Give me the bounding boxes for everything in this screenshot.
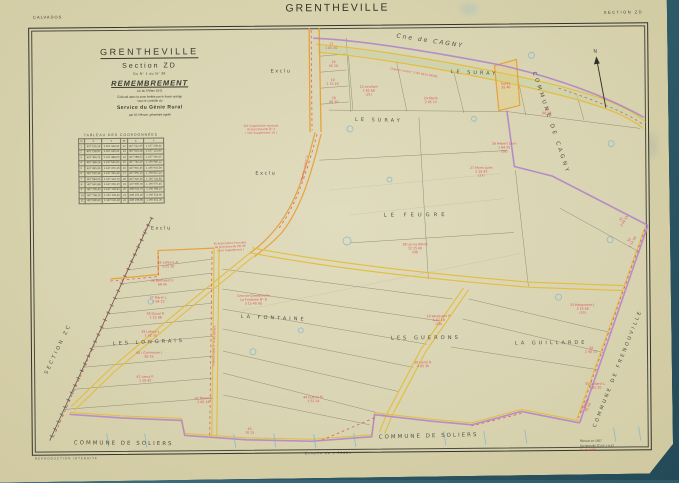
section-label: SECTION ZD [604, 9, 643, 14]
coordinates-table-cell: 407 830,60 [86, 198, 103, 204]
coordinates-table-cell: 1 166 452,30 [145, 198, 164, 204]
title-law: Loi du 9 Mars 1941 [63, 88, 237, 94]
title-parcel-range: Du N° 1 au N° 38 [63, 71, 237, 77]
title-service: Service du Génie Rural [63, 103, 237, 111]
scale-note: Échelle de 1:2000e [305, 451, 352, 455]
coordinates-table-row: 11407 830,601 167 032,1822408 168,851 16… [79, 198, 164, 204]
title-commune: GRENTHEVILLE [100, 46, 199, 59]
map-document: CALVADOS GRENTHEVILLE SECTION ZD GRENTHE… [0, 0, 679, 483]
revision-block: Rénové en 1957 Grentheville ZD N° 1 à 47… [580, 438, 670, 452]
title-section: Section ZD [62, 62, 236, 71]
title-operation: REMEMBREMENT [63, 78, 237, 89]
map-title: GRENTHEVILLE [0, 0, 677, 17]
title-block: GRENTHEVILLE Section ZD Du N° 1 au N° 38… [62, 41, 237, 117]
coordinates-table: TABLEAU DES COORDONNÉES PtXYPtXY 1407 12… [78, 133, 164, 205]
coordinates-table-cell: 408 168,85 [128, 198, 145, 204]
title-note2: sous le contrôle du [63, 98, 237, 104]
reproduction-notice: REPRODUCTION INTERDITE [35, 456, 98, 461]
revision-line3: Vu et vérifié [580, 447, 670, 452]
coordinates-table-title: TABLEAU DES COORDONNÉES [78, 133, 164, 138]
coordinates-table-grid: PtXYPtXY 1407 125,141 167 342,6012407 51… [78, 138, 164, 205]
coordinates-table-cell: 1 167 032,18 [102, 198, 121, 204]
